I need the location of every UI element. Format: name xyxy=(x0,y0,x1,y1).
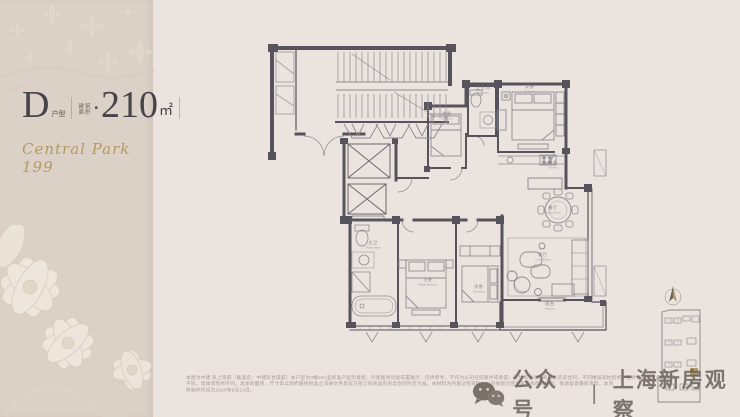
floral-emboss-bottom-icon xyxy=(0,225,155,417)
furniture-bedrooms xyxy=(399,92,564,315)
furniture-bathrooms xyxy=(352,86,496,316)
watermark-account-name: 上海新房观察 xyxy=(613,364,740,417)
watermark-separator: 丨 xyxy=(584,379,605,409)
area-value: 210 xyxy=(101,88,158,122)
floorplan-drawing xyxy=(252,38,644,346)
window-band xyxy=(360,326,584,342)
unit-headline: D 户型 建筑 面积 • 210 ㎡ xyxy=(22,88,186,122)
area-unit: ㎡ xyxy=(159,100,173,120)
north-arrow-icon xyxy=(665,286,681,305)
divider-line xyxy=(179,97,180,119)
staircase xyxy=(276,52,448,118)
wall-columns xyxy=(268,44,606,328)
unit-type-letter: D xyxy=(22,88,49,122)
unit-type-suffix: 户型 xyxy=(51,109,65,119)
watermark: 公众号 丨 上海新房观察 xyxy=(472,364,740,417)
area-caption: 建筑 面积 xyxy=(78,104,91,116)
divider-line xyxy=(71,97,72,119)
bullet-dot: • xyxy=(94,104,98,114)
area-caption-bottom: 面积 xyxy=(78,110,91,116)
left-brand-panel: D 户型 建筑 面积 • 210 ㎡ Central Park 199 xyxy=(0,0,153,417)
watermark-account-label: 公众号 xyxy=(512,364,576,417)
wechat-icon xyxy=(472,379,505,409)
elevator-shafts xyxy=(348,144,390,221)
poster-canvas: D 户型 建筑 面积 • 210 ㎡ Central Park 199 xyxy=(0,0,740,417)
project-name: Central Park 199 xyxy=(22,140,153,176)
